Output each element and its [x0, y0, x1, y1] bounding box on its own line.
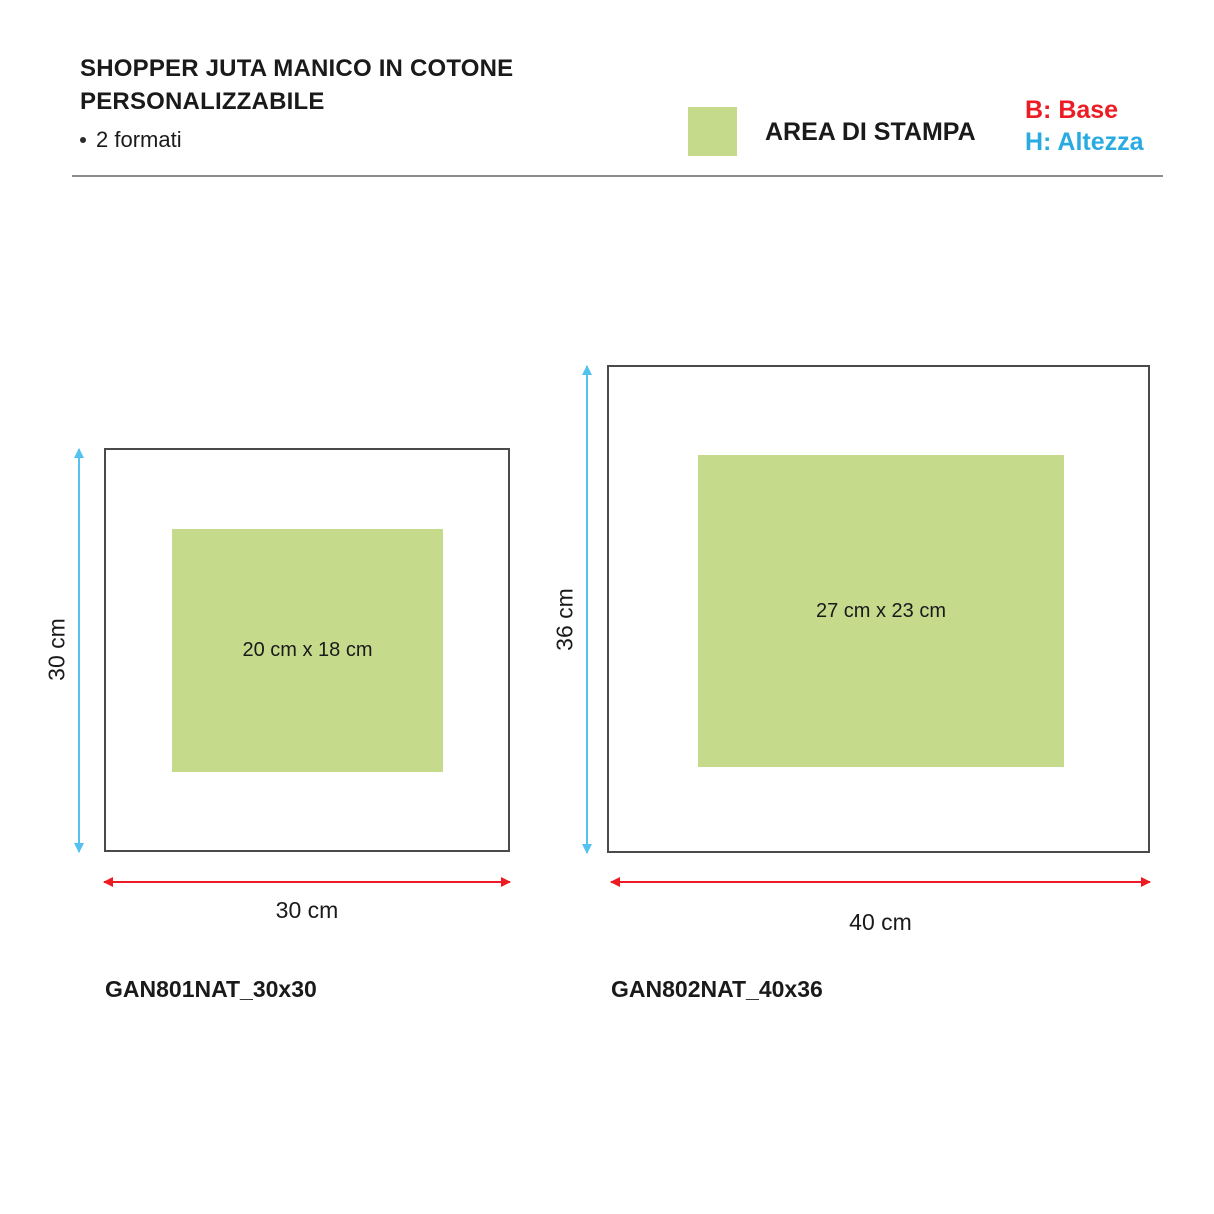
formats-bullet-item: 2 formati — [80, 127, 182, 153]
bullet-icon — [80, 137, 86, 143]
print-area-left: 20 cm x 18 cm — [172, 529, 443, 772]
print-area-right: 27 cm x 23 cm — [698, 455, 1064, 767]
height-arrow-left — [78, 449, 80, 852]
print-area-right-label: 27 cm x 23 cm — [816, 600, 946, 623]
height-dim-right: 36 cm — [552, 580, 579, 660]
page-canvas: SHOPPER JUTA MANICO IN COTONE PERSONALIZ… — [0, 0, 1214, 1214]
print-area-swatch-icon — [688, 107, 737, 156]
width-dim-right: 40 cm — [611, 909, 1150, 936]
page-title-line1: SHOPPER JUTA MANICO IN COTONE — [80, 52, 513, 85]
product-code-right: GAN802NAT_40x36 — [611, 976, 823, 1003]
width-arrow-left — [104, 881, 510, 883]
print-area-legend-label: AREA DI STAMPA — [765, 118, 976, 147]
base-legend-label: B: Base — [1025, 96, 1118, 125]
header-divider — [72, 175, 1163, 177]
height-dim-left: 30 cm — [44, 610, 71, 690]
height-legend-label: H: Altezza — [1025, 128, 1144, 157]
page-title-line2: PERSONALIZZABILE — [80, 85, 513, 118]
width-arrow-right — [611, 881, 1150, 883]
width-dim-left: 30 cm — [104, 897, 510, 924]
height-arrow-right — [586, 366, 588, 853]
formats-bullet-label: 2 formati — [96, 127, 182, 153]
print-area-left-label: 20 cm x 18 cm — [242, 639, 372, 662]
page-title: SHOPPER JUTA MANICO IN COTONE PERSONALIZ… — [80, 52, 513, 118]
product-code-left: GAN801NAT_30x30 — [105, 976, 317, 1003]
